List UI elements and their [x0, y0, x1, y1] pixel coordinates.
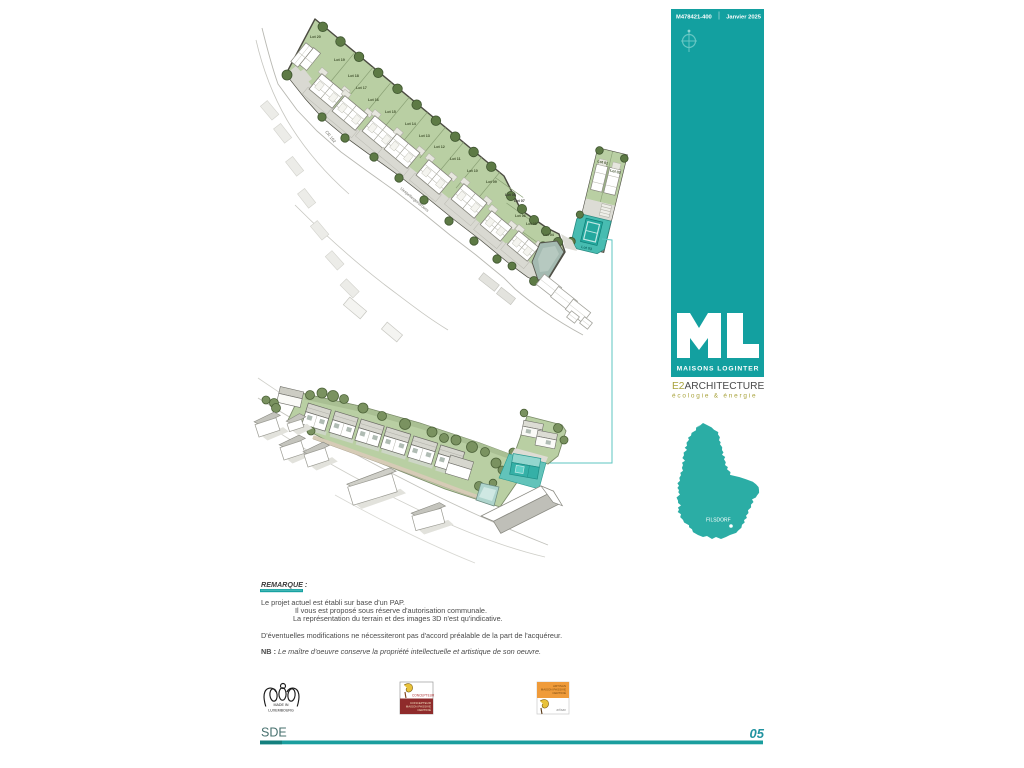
- svg-text:écologie & énergie: écologie & énergie: [672, 393, 757, 400]
- svg-text:CERTIFIÉ: CERTIFIÉ: [552, 690, 566, 695]
- svg-text:NB : Le maître d'oeuvre conser: NB : Le maître d'oeuvre conserve la prop…: [261, 647, 541, 656]
- svg-text:Lot 14: Lot 14: [405, 122, 417, 126]
- svg-text:Lot 08: Lot 08: [505, 193, 516, 197]
- svg-text:Lot 06: Lot 06: [515, 214, 526, 218]
- svg-text:CERTIFIÉ: CERTIFIÉ: [417, 707, 431, 712]
- svg-text:MADE IN: MADE IN: [274, 703, 289, 707]
- svg-text:SDE: SDE: [261, 726, 287, 740]
- svg-text:Lot 11: Lot 11: [450, 157, 461, 161]
- svg-text:Lot 10: Lot 10: [467, 169, 478, 173]
- svg-text:Lot 04: Lot 04: [543, 233, 555, 237]
- svg-text:Lot 12: Lot 12: [434, 145, 445, 149]
- svg-text:MAISONS LOGINTER: MAISONS LOGINTER: [677, 366, 760, 373]
- svg-text:Lot 19: Lot 19: [334, 58, 345, 62]
- svg-text:Lot 05: Lot 05: [526, 222, 537, 226]
- svg-text:CONCEPTEUR: CONCEPTEUR: [412, 694, 435, 698]
- svg-text:Janvier 2025: Janvier 2025: [726, 15, 762, 21]
- svg-text:artisan: artisan: [556, 708, 566, 712]
- svg-text:Lot 07: Lot 07: [514, 199, 525, 203]
- svg-text:Lot 18: Lot 18: [348, 74, 359, 78]
- svg-text:Lot 17: Lot 17: [356, 86, 367, 90]
- svg-text:FILSDORF: FILSDORF: [706, 518, 731, 524]
- svg-text:Lot 13: Lot 13: [419, 134, 430, 138]
- svg-text:05: 05: [750, 726, 765, 741]
- svg-text:Lot 16: Lot 16: [368, 98, 379, 102]
- svg-text:D'éventuelles modifications ne: D'éventuelles modifications ne nécessite…: [261, 631, 562, 640]
- svg-text:REMARQUE :: REMARQUE :: [261, 580, 308, 589]
- svg-text:E2: E2: [672, 381, 685, 392]
- svg-text:La représentation du terrain e: La représentation du terrain et des imag…: [293, 614, 503, 623]
- svg-text:ARCHITECTURE: ARCHITECTURE: [685, 381, 765, 392]
- svg-text:LUXEMBOURG: LUXEMBOURG: [268, 709, 294, 713]
- svg-text:Lot 15: Lot 15: [385, 110, 396, 114]
- svg-text:Lot 20: Lot 20: [310, 35, 321, 39]
- svg-text:Lot 09: Lot 09: [486, 180, 497, 184]
- svg-text:M478421-400: M478421-400: [676, 15, 712, 21]
